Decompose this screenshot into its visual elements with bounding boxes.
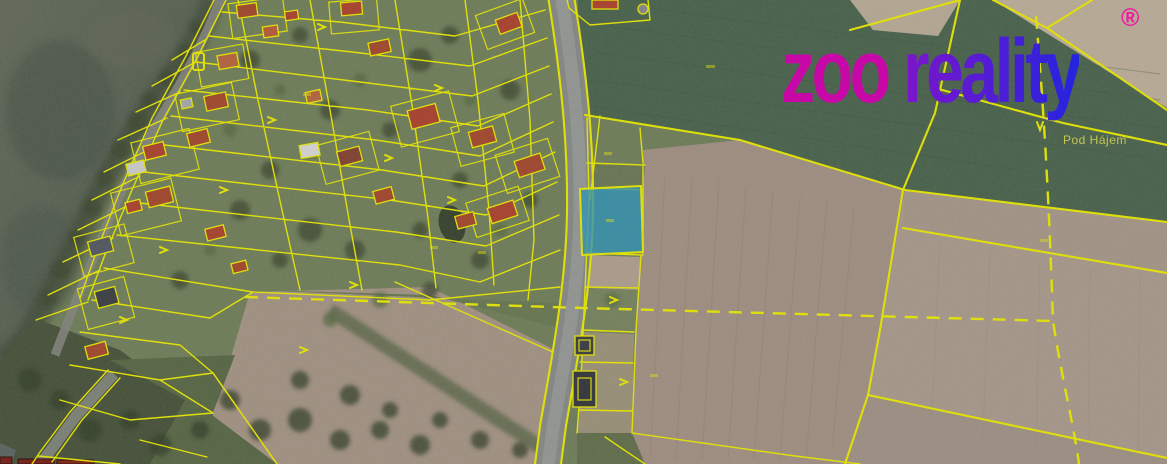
place-name-label: Pod Hájem bbox=[1063, 133, 1127, 147]
logo-reality-text: reality bbox=[903, 22, 1079, 122]
map-viewport[interactable]: Pod Hájem zoo reality ® bbox=[0, 0, 1167, 464]
logo-zoo-text: zoo bbox=[781, 22, 888, 122]
brand-watermark: zoo reality bbox=[781, 27, 1079, 117]
registered-trademark-icon: ® bbox=[1121, 6, 1139, 31]
